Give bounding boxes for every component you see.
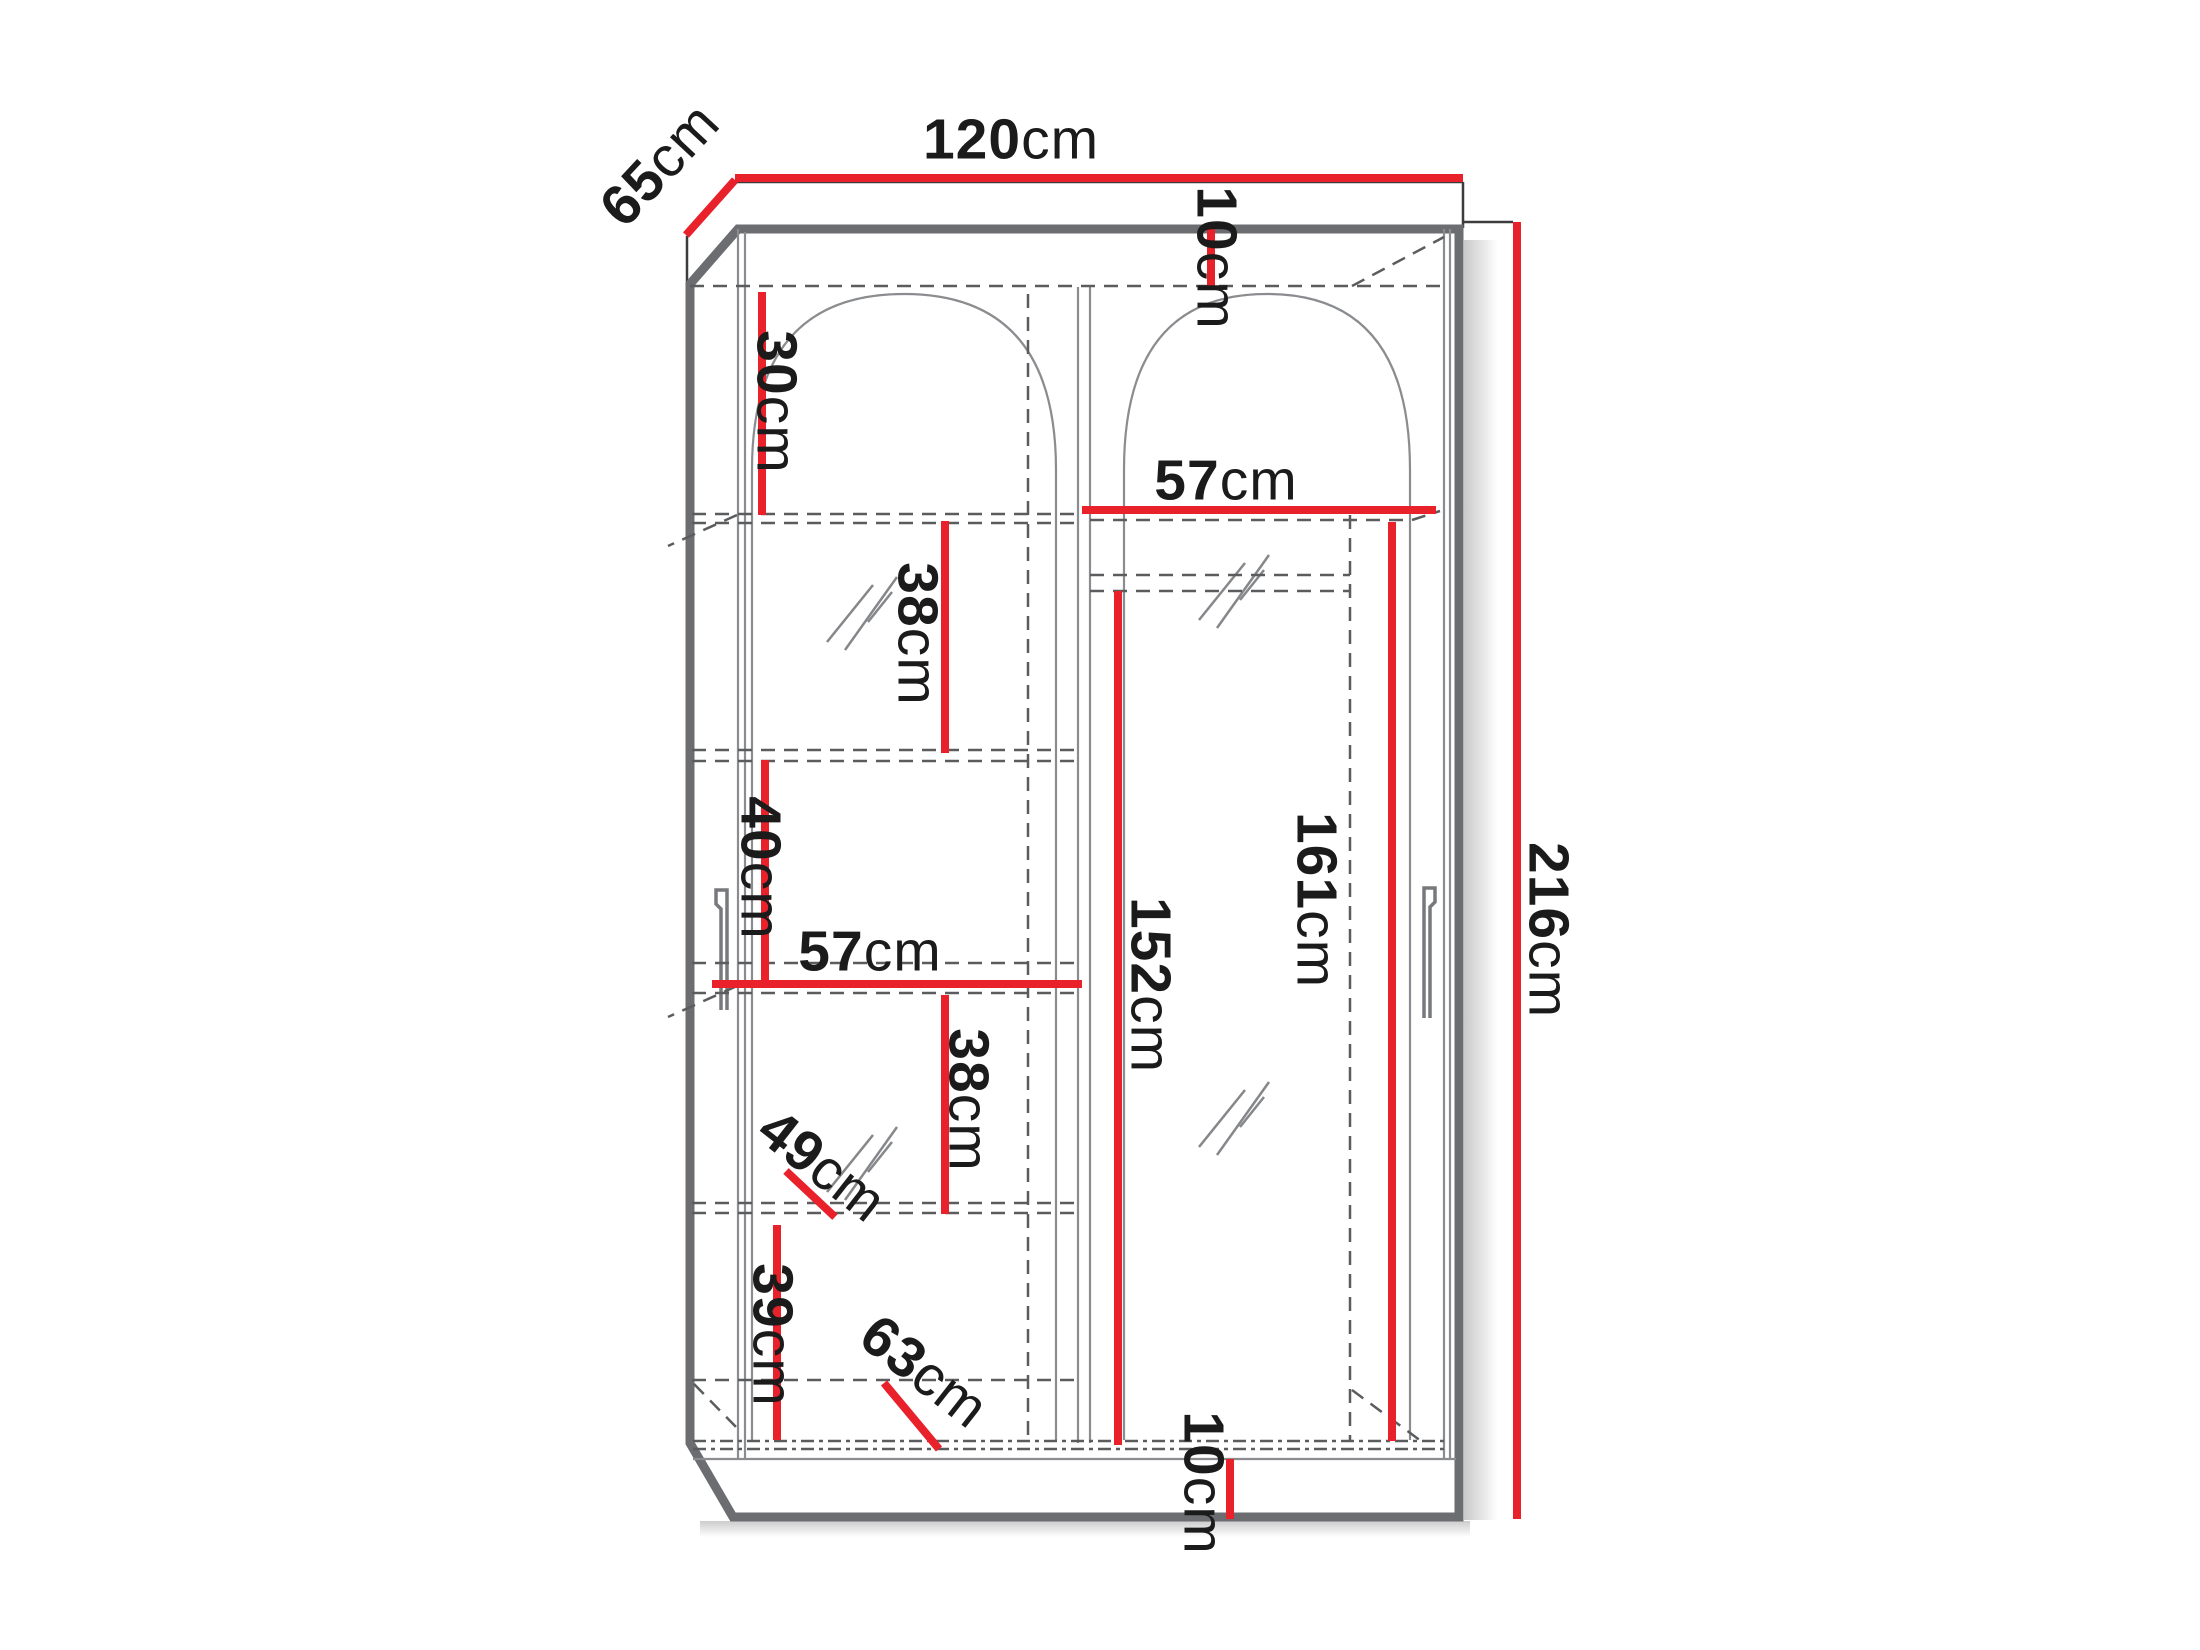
dim-unit: cm	[745, 396, 809, 474]
dim-value: 10	[1185, 186, 1249, 251]
shelf1-side-diagonal	[668, 515, 737, 546]
dim-label-left-shelf-lower: 38cm	[940, 1028, 997, 1171]
dim-unit: cm	[1119, 995, 1183, 1073]
dim-value: 10	[1172, 1411, 1236, 1476]
right-door-handle	[1424, 888, 1435, 1018]
dim-label-top-gap: 10cm	[1188, 186, 1245, 329]
dim-label-width: 120cm	[923, 112, 1099, 169]
dim-value: 40	[729, 796, 793, 861]
dim-unit: cm	[937, 1094, 1001, 1172]
dim-label-left-inner-width: 57cm	[798, 924, 941, 981]
dim-value: 57	[1154, 449, 1219, 513]
mirror-hatch-lower-right	[1199, 1082, 1269, 1155]
dim-value: 39	[741, 1263, 805, 1328]
floor-lines	[693, 1441, 1447, 1449]
dim-unit: cm	[1172, 1477, 1236, 1555]
dim-label-left-shelf-bottom: 39cm	[744, 1263, 801, 1406]
dim-label-left-shelf-upper: 38cm	[889, 562, 946, 705]
dim-value: 38	[937, 1028, 1001, 1093]
top-right-depth-diagonal	[1352, 237, 1444, 286]
dim-unit: cm	[1285, 910, 1349, 988]
dim-unit: cm	[1220, 449, 1298, 513]
dim-unit: cm	[1021, 108, 1099, 172]
dim-value: 216	[1517, 842, 1581, 940]
dim-value: 161	[1285, 812, 1349, 910]
dim-line-depth-65	[686, 180, 735, 235]
dim-value: 120	[923, 108, 1021, 172]
dim-value: 57	[798, 920, 863, 984]
dim-label-plinth-height: 10cm	[1175, 1411, 1232, 1554]
dim-value: 38	[886, 562, 950, 627]
right-shadow	[1464, 240, 1498, 1520]
dim-label-height: 216cm	[1520, 842, 1577, 1018]
dim-value: 152	[1119, 897, 1183, 995]
bottom-left-depth-diagonal	[694, 1384, 737, 1428]
bottom-shadow	[700, 1521, 1470, 1537]
dim-unit: cm	[729, 862, 793, 940]
dim-unit: cm	[741, 1329, 805, 1407]
dim-label-hang-height-right: 161cm	[1288, 812, 1345, 988]
dim-unit: cm	[886, 628, 950, 706]
dim-unit: cm	[1517, 940, 1581, 1018]
dim-label-left-top-shelf: 30cm	[748, 330, 805, 473]
dim-value: 30	[745, 330, 809, 395]
dim-label-left-shelf-mid: 40cm	[732, 796, 789, 939]
dim-label-hang-height-left: 152cm	[1122, 897, 1179, 1073]
diagram-linework	[0, 0, 2200, 1650]
dim-label-right-inner-width: 57cm	[1154, 453, 1297, 510]
shadow	[700, 240, 1498, 1537]
dim-unit: cm	[864, 920, 942, 984]
dimension-lines	[686, 178, 1517, 1519]
dim-unit: cm	[1185, 252, 1249, 330]
wardrobe-dimension-diagram: 120cm 65cm 10cm 30cm 57cm 38cm 161cm 152…	[0, 0, 2200, 1650]
